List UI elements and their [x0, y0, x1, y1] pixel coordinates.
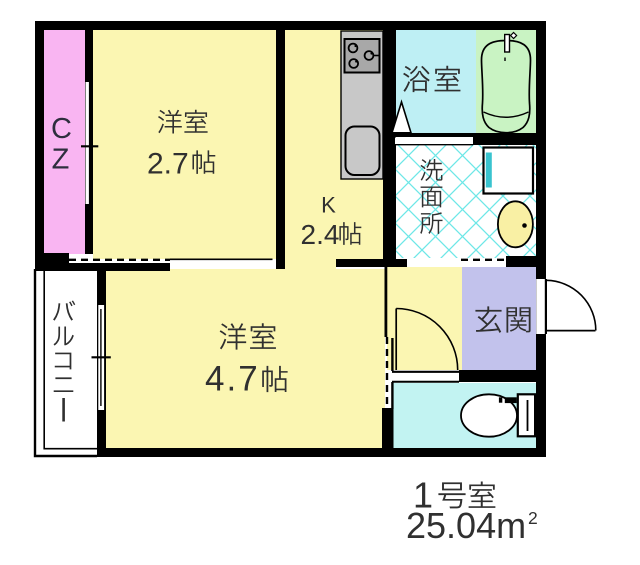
svg-text:C: C — [51, 113, 72, 145]
svg-text:25.04m: 25.04m — [406, 505, 526, 546]
svg-text:2.4: 2.4 — [301, 219, 340, 250]
svg-text:4.7: 4.7 — [205, 360, 260, 399]
svg-text:2.7: 2.7 — [147, 148, 189, 181]
svg-text:Z: Z — [52, 144, 70, 176]
svg-text:2: 2 — [528, 508, 538, 528]
svg-text:K: K — [321, 192, 336, 217]
